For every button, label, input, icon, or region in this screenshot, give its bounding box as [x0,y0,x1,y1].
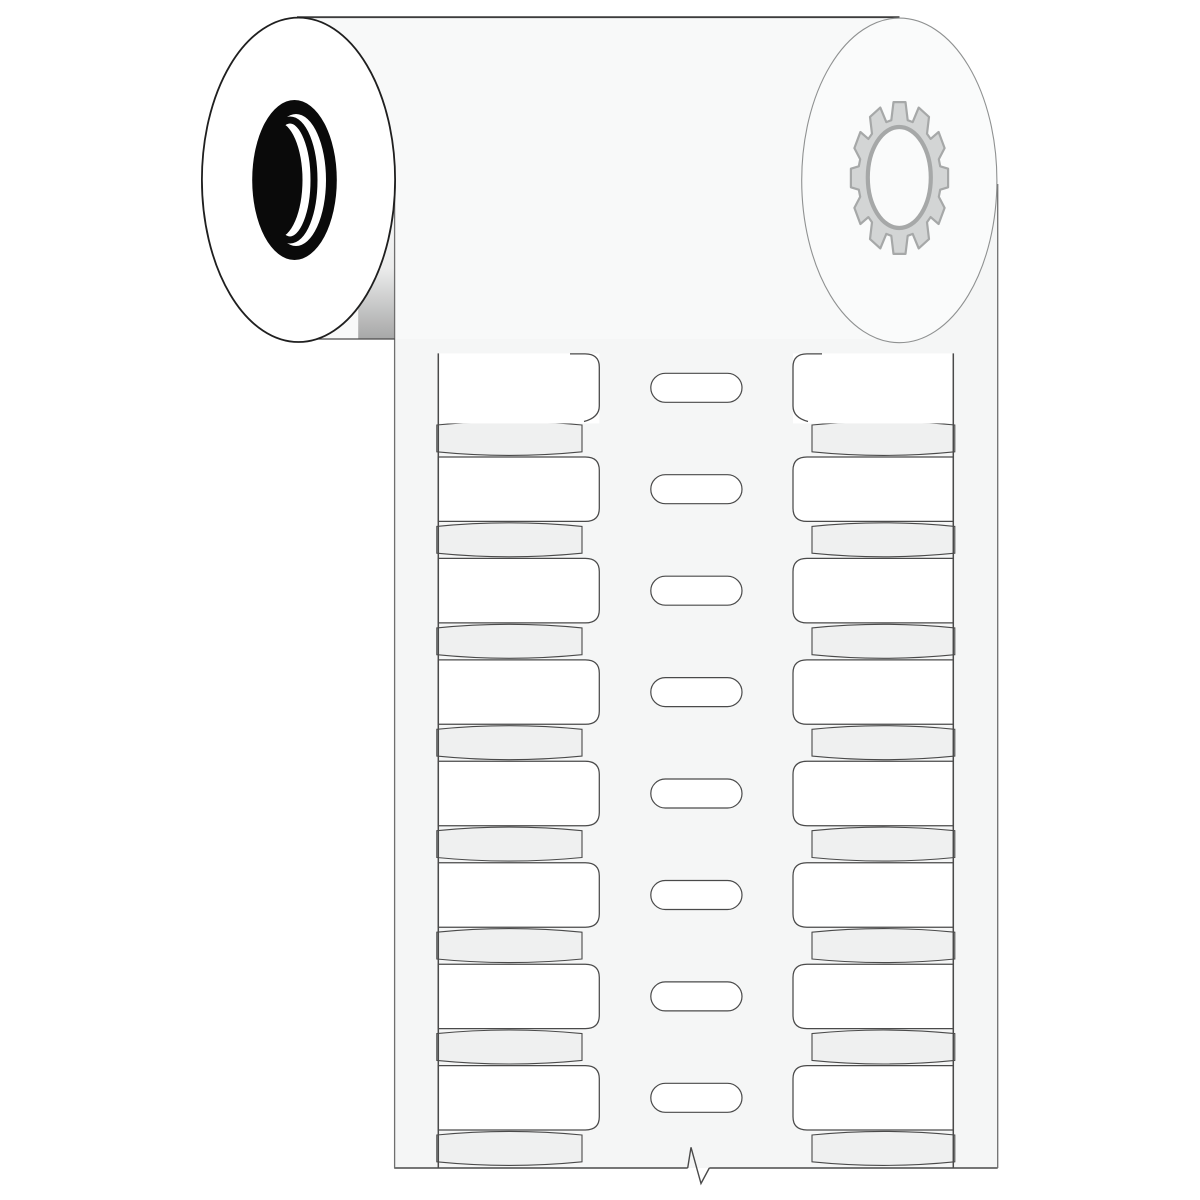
marker-label [793,1066,953,1130]
carrier-band [812,421,955,455]
feed-slot [651,982,742,1011]
marker-label [793,660,953,724]
marker-label [438,1066,599,1130]
carrier-band [437,1131,582,1165]
feed-slot [651,475,742,504]
carrier-band [812,624,955,658]
label-column-left [437,353,600,1168]
top-partial-label [438,353,599,423]
carrier-band [437,726,582,760]
carrier-band [437,523,582,557]
marker-label [438,761,599,825]
marker-label [438,964,599,1028]
carrier-band [812,1030,955,1064]
marker-label [438,660,599,724]
carrier-band [812,1131,955,1165]
marker-label [793,761,953,825]
marker-label [438,863,599,928]
feed-slot [651,779,742,808]
marker-label [793,863,953,928]
carrier-band [437,1030,582,1064]
feed-slot [651,1083,742,1112]
marker-label [793,964,953,1028]
feed-slot [651,576,742,605]
marker-label [438,558,599,623]
marker-label [438,457,599,521]
label-column-right [793,353,955,1168]
carrier-band [437,421,582,455]
roll-left-flange [202,18,395,342]
marker-label [793,558,953,623]
feed-slot [651,373,742,402]
core-bore [253,122,303,238]
core-hole-icon [252,100,337,260]
carrier-band [437,624,582,658]
roll-right-flange [802,18,997,343]
marker-label [793,457,953,521]
feed-slot [651,678,742,707]
carrier-band [812,929,955,963]
top-partial-label [793,353,953,423]
carrier-band [812,523,955,557]
feed-slot [651,881,742,910]
carrier-band [437,929,582,963]
label-roll-illustration [0,0,1200,1200]
carrier-band [437,827,582,861]
gear-hole [868,127,931,228]
product-illustration [0,0,1200,1200]
carrier-band [812,827,955,861]
carrier-band [812,726,955,760]
